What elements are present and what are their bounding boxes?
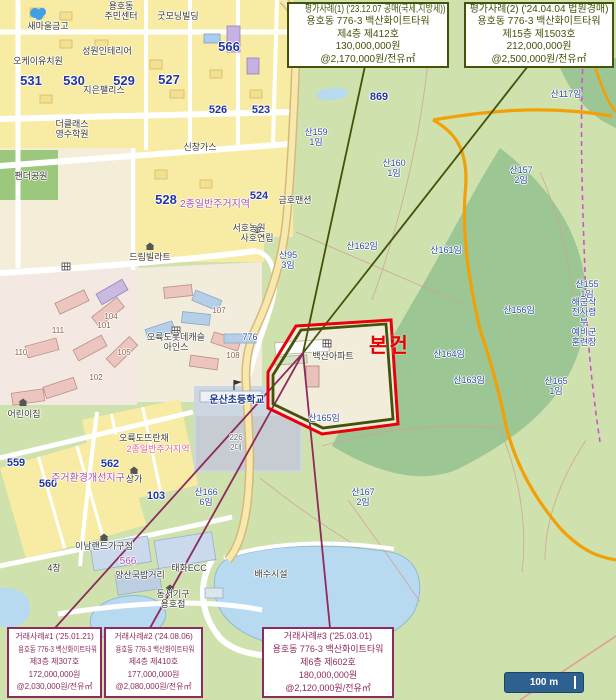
case-price: 212,000,000원	[466, 41, 612, 54]
case-unit: 제4층 제412호	[289, 29, 447, 42]
case-price: 130,000,000원	[289, 41, 447, 54]
case-title: 평가사례(1) ('23.12.07 공매(국세,지방세))	[305, 4, 431, 17]
case-price: 180,000,000원	[264, 669, 392, 682]
apartment-grid-icon	[323, 340, 331, 347]
case-unit-price: @2,080,000원/전유㎡	[106, 681, 201, 694]
case-price: 172,000,000원	[9, 669, 100, 682]
apartment-grid-icon	[62, 263, 70, 270]
case-unit: 제3층 제307호	[9, 656, 100, 669]
scale-bar-tick	[574, 676, 576, 689]
transaction-case-1-box: 거래사례#1 ('25.01.21) 용호동 776-3 백산화이트타워 제3층…	[7, 627, 102, 698]
case-unit-price: @2,170,000원/전유㎡	[289, 54, 447, 67]
case-address: 용호동 776-3 백산화이트타워	[18, 644, 91, 657]
hiking-trail-dashed	[581, 60, 600, 442]
apartment-grid-icon	[172, 327, 180, 334]
case-unit-price: @2,120,000원/전유㎡	[264, 682, 392, 695]
case-title: 평가사례(2) ('24.04.04 법원경매)	[466, 4, 612, 17]
case-title: 거래사례#2 ('24.08.06)	[106, 631, 201, 644]
case-address: 용호동 776-3 백산화이트타워	[289, 16, 447, 29]
appraisal-case-2-box: 평가사례(2) ('24.04.04 법원경매) 용호동 776-3 백산화이트…	[464, 2, 614, 68]
basemap-canvas	[0, 0, 616, 700]
transaction-case-2-box: 거래사례#2 ('24.08.06) 용호동 776-3 백산화이트타워 제4층…	[104, 627, 203, 698]
case-unit-price: @2,500,000원/전유㎡	[466, 54, 612, 67]
scale-bar-label: 100 m	[530, 677, 558, 688]
case-address: 용호동 776-3 백산화이트타워	[264, 643, 392, 656]
case-address: 용호동 776-3 백산화이트타워	[466, 16, 612, 29]
case-unit: 제4층 제410호	[106, 656, 201, 669]
case-unit: 제6층 제602호	[264, 656, 392, 669]
case-unit-price: @2,030,000원/전유㎡	[9, 681, 100, 694]
subject-marker-label: 본건	[369, 336, 410, 356]
case-title: 거래사례#3 ('25.03.01)	[264, 630, 392, 643]
case-address: 용호동 776-3 백산화이트타워	[116, 644, 192, 657]
case-unit: 제15층 제1503호	[466, 29, 612, 42]
case-price: 177,000,000원	[106, 669, 201, 682]
appraisal-map-view: 새마을금고용호동 주민센터굿모닝빌딩오케이유치원성원인테리어지은팰리스더클래스 …	[0, 0, 616, 700]
scale-bar: 100 m	[504, 672, 584, 693]
appraisal-case-1-box: 평가사례(1) ('23.12.07 공매(국세,지방세)) 용호동 776-3…	[287, 2, 449, 68]
case-title: 거래사례#1 ('25.01.21)	[9, 631, 100, 644]
transaction-case-3-box: 거래사례#3 ('25.03.01) 용호동 776-3 백산화이트타워 제6층…	[262, 627, 394, 698]
